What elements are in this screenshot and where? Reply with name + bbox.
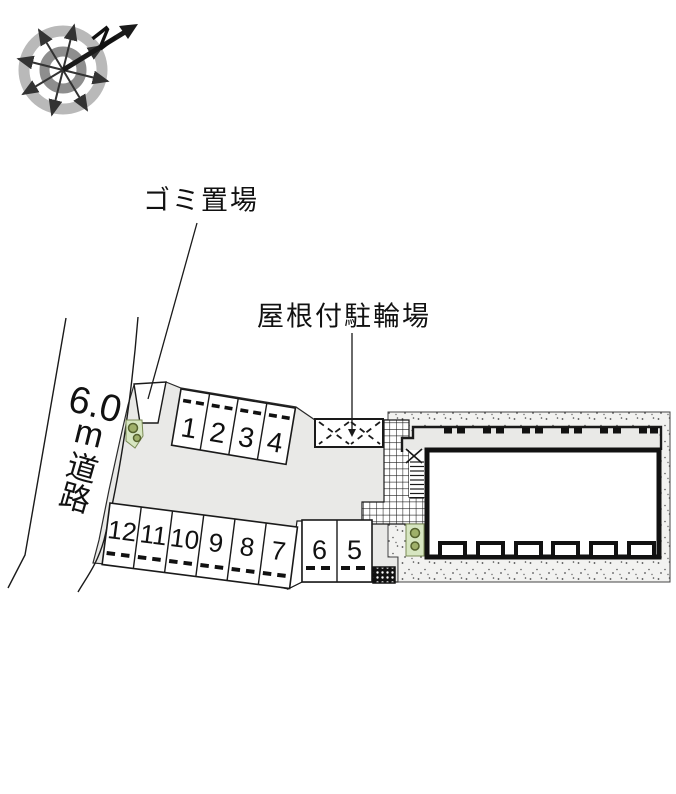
site-plan-svg: N 6.0 m 道 路 bbox=[0, 0, 676, 794]
road-outer-line bbox=[8, 318, 66, 588]
building bbox=[402, 427, 661, 557]
garbage-label: ゴミ置場 bbox=[143, 186, 259, 217]
road-kanji-2: 路 bbox=[55, 477, 97, 521]
garbage-leader-line bbox=[148, 223, 197, 399]
building-hall bbox=[427, 450, 659, 557]
compass: N bbox=[7, 14, 138, 126]
stall-number: 6 bbox=[312, 535, 327, 565]
parking-row-right: 6 5 bbox=[302, 520, 372, 582]
utility-box bbox=[373, 567, 395, 583]
bicycle-label: 屋根付駐輪場 bbox=[257, 302, 431, 333]
stall-number: 11 bbox=[138, 518, 169, 551]
site-plan-page: N 6.0 m 道 路 bbox=[0, 0, 676, 794]
stall-number: 10 bbox=[169, 522, 201, 555]
stair-landing bbox=[409, 450, 425, 497]
stall-number: 5 bbox=[347, 535, 362, 565]
stall-number: 12 bbox=[106, 514, 138, 547]
building-green-strip bbox=[406, 524, 424, 556]
bicycle-parking bbox=[315, 419, 383, 447]
road bbox=[8, 318, 66, 588]
